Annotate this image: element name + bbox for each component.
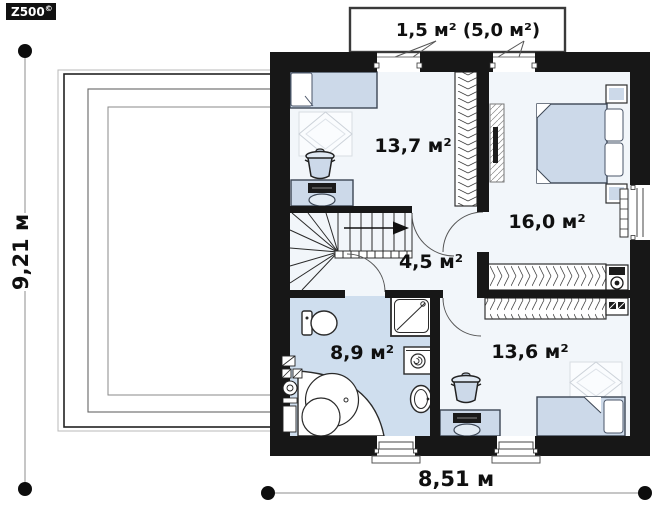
dimension-height-label: 9,21 м <box>9 214 33 290</box>
window-bedroom2 <box>620 185 650 240</box>
wardrobe-icon <box>485 298 606 319</box>
sink-icon <box>411 386 432 413</box>
room-area-label-hall: 4,5 м² <box>399 251 463 273</box>
carpet-icon <box>299 112 352 156</box>
z500-logo: Z500© <box>6 3 56 20</box>
balcony-door-bedroom1 <box>374 57 422 68</box>
radiator-icon <box>620 189 628 237</box>
bed-icon <box>290 72 377 108</box>
bed-icon <box>537 397 625 436</box>
window-bathroom <box>372 436 420 463</box>
toilet-icon <box>302 311 337 335</box>
balcony: 1,5 м² (5,0 м²) <box>350 8 565 57</box>
garage-roof-outline <box>58 70 272 431</box>
window-bedroom3 <box>492 436 540 463</box>
dimension-dot <box>18 44 32 58</box>
washing-machine-icon <box>404 347 432 374</box>
room-area-label-bathroom: 8,9 м² <box>330 342 394 364</box>
dimension-height: 9,21 м <box>7 44 37 496</box>
dimension-dot <box>18 482 32 496</box>
dimension-width-label: 8,51 м <box>418 467 494 491</box>
tv-unit-icon <box>490 104 504 182</box>
dimension-dot <box>638 486 652 500</box>
room-area-label-bedroom2: 16,0 м² <box>508 211 585 233</box>
dimension-width: 8,51 м <box>261 467 652 500</box>
vent-unit-icon <box>606 298 628 315</box>
balcony-door-bedroom2 <box>490 57 537 68</box>
floor-plan-page: Z500© 9,21 м 8,51 м 1,5 м² (5,0 м²) <box>0 0 655 516</box>
balcony-area-label: 1,5 м² (5,0 м²) <box>396 20 540 41</box>
desk-icon <box>291 180 353 206</box>
wardrobe-icon <box>485 264 606 290</box>
desk-icon <box>440 410 500 436</box>
vent-unit-icon <box>606 265 628 290</box>
room-area-label-bedroom3: 13,6 м² <box>491 341 568 363</box>
floor-plan-drawing: Z500© 9,21 м 8,51 м 1,5 м² (5,0 м²) <box>0 0 655 516</box>
wardrobe-icon <box>455 72 477 206</box>
dimension-dot <box>261 486 275 500</box>
shower-icon <box>391 296 432 336</box>
room-area-label-bedroom1: 13,7 м² <box>374 135 451 157</box>
